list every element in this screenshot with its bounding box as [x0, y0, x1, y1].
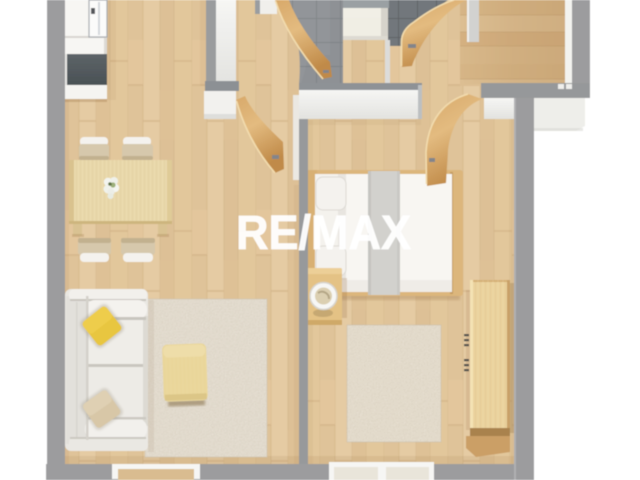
svg-text:RE/MAX: RE/MAX: [236, 206, 411, 260]
